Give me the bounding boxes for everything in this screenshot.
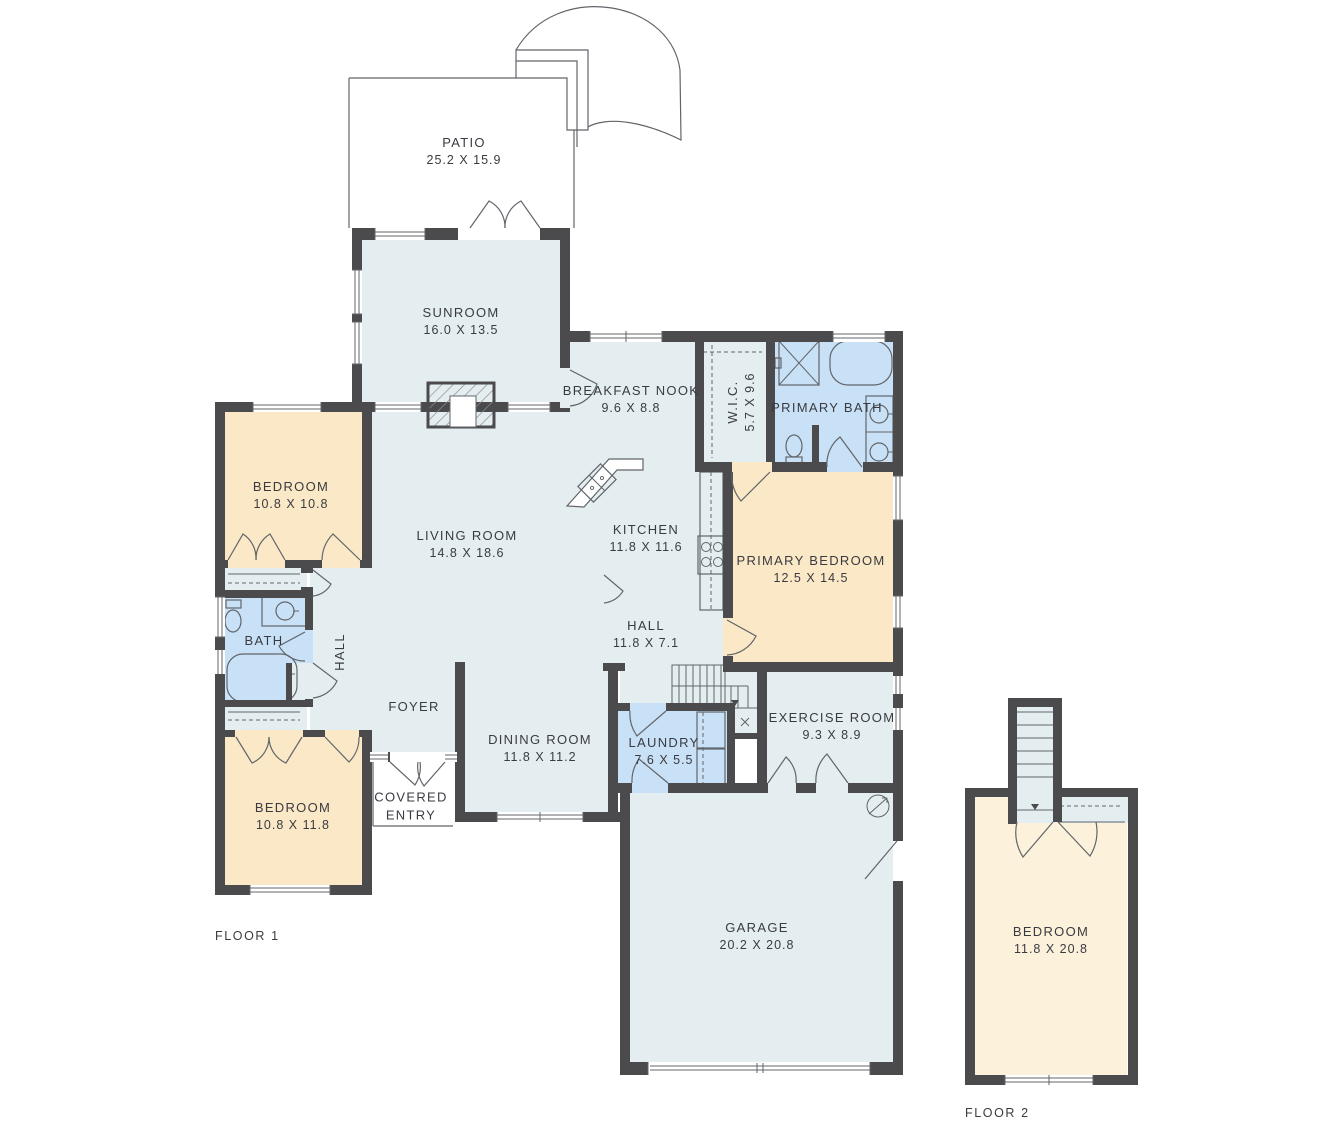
- window: [375, 402, 421, 412]
- patio-door: [470, 201, 505, 228]
- window: [893, 596, 903, 628]
- window: [370, 752, 388, 762]
- label-patio: PATIO25.2 X 15.9: [427, 134, 502, 170]
- window: [833, 331, 885, 342]
- window: [893, 676, 903, 694]
- floor-plan-drawing: [0, 0, 1336, 1136]
- label-laundry: LAUNDRY7.6 X 5.5: [629, 734, 700, 770]
- label-living-room: LIVING ROOM14.8 X 18.6: [417, 527, 518, 563]
- label-breakfast-nook: BREAKFAST NOOK9.6 X 8.8: [563, 382, 699, 418]
- label-hall: HALL11.8 X 7.1: [613, 617, 679, 653]
- window: [352, 270, 362, 314]
- label-covered-entry: COVERED ENTRY: [355, 788, 467, 823]
- patio-steps: [516, 50, 588, 147]
- garage-door: [648, 1062, 870, 1075]
- window: [352, 322, 362, 364]
- label-kitchen: KITCHEN11.8 X 11.6: [609, 521, 682, 557]
- window: [508, 402, 550, 412]
- stairwell-opening: [1017, 788, 1053, 797]
- landscape-curve: [516, 7, 681, 140]
- label-garage: GARAGE20.2 X 20.8: [720, 919, 795, 955]
- front-door: [390, 762, 420, 785]
- label-bedroom1: BEDROOM10.8 X 10.8: [253, 478, 329, 514]
- window: [215, 597, 225, 637]
- window: [253, 402, 321, 412]
- label-primary-bedroom: PRIMARY BEDROOM12.5 X 14.5: [736, 552, 885, 588]
- label-primary-bath: PRIMARY BATH: [771, 399, 883, 417]
- window: [250, 885, 330, 895]
- label-sunroom: SUNROOM16.0 X 13.5: [423, 304, 500, 340]
- window: [893, 476, 903, 520]
- window: [497, 812, 583, 822]
- label-foyer: FOYER: [388, 698, 439, 716]
- label-exercise-room: EXERCISE ROOM9.3 X 8.9: [769, 709, 896, 745]
- closet2-area: [222, 705, 307, 733]
- window: [1005, 1075, 1093, 1085]
- floor-plan: PATIO25.2 X 15.9 SUNROOM16.0 X 13.5 BREA…: [0, 0, 1336, 1136]
- window: [443, 752, 457, 762]
- closet-floor2-area: [1058, 793, 1128, 823]
- window: [590, 331, 662, 342]
- floor2-label: FLOOR 2: [965, 1106, 1030, 1120]
- label-hall-side: HALL: [331, 633, 349, 671]
- label-bath: BATH: [245, 632, 284, 650]
- floor1-label: FLOOR 1: [215, 929, 280, 943]
- window: [375, 228, 425, 240]
- front-door: [418, 762, 445, 786]
- label-wic: W.I.C.5.7 X 9.6: [724, 372, 760, 431]
- closet1-area: [222, 566, 307, 594]
- fireplace: [428, 383, 494, 427]
- label-bedroom2: BEDROOM10.8 X 11.8: [255, 799, 331, 835]
- patio-door: [505, 201, 540, 228]
- label-dining-room: DINING ROOM11.8 X 11.2: [488, 731, 592, 767]
- window: [215, 650, 225, 674]
- label-bedroom-floor2: BEDROOM11.8 X 20.8: [1013, 923, 1089, 959]
